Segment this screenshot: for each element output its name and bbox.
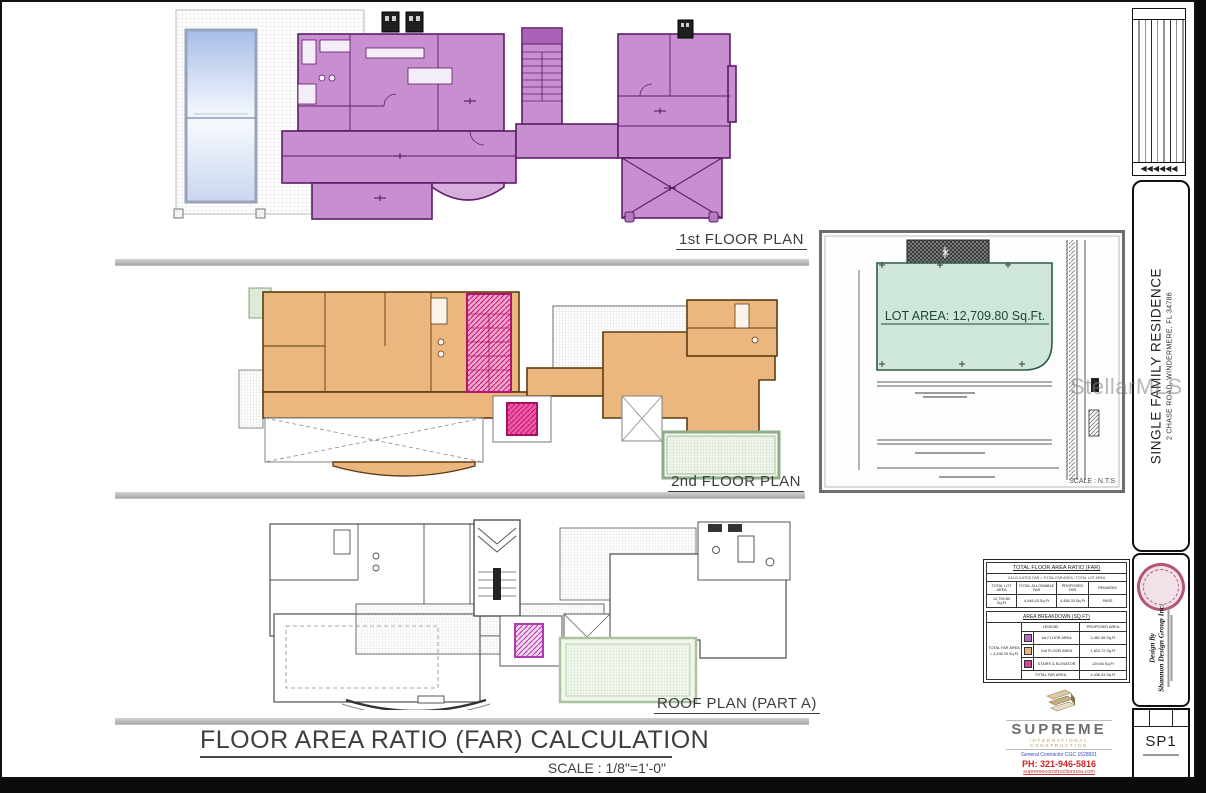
roof-stair-tower bbox=[474, 520, 520, 616]
designer-name: Shannon Design Group Inc. bbox=[1157, 602, 1166, 694]
far-summary-table: TOTAL FLOOR AREA RATIO (FAR) CALCULATED … bbox=[983, 559, 1130, 683]
roof-elevator bbox=[500, 616, 562, 666]
project-name: SINGLE FAMILY RESIDENCE bbox=[1149, 191, 1164, 541]
revision-arrows-icon: ◀◀◀◀◀◀ bbox=[1133, 162, 1185, 175]
contractor-website[interactable]: supremeconstructionusa.com bbox=[1006, 769, 1112, 775]
sheet-scale: SCALE : 1/8"=1'-0" bbox=[200, 760, 672, 776]
designer-box: Design By Shannon Design Group Inc. bbox=[1132, 553, 1190, 707]
separator-bar bbox=[115, 718, 809, 724]
contractor-name: SUPREME bbox=[1006, 720, 1112, 738]
lot-area-label: LOT AREA: 12,709.80 Sq.Ft. bbox=[885, 309, 1045, 323]
second-floor-plan-label: 2nd FLOOR PLAN bbox=[668, 473, 804, 492]
second-floor-plan-drawing bbox=[235, 284, 809, 484]
roof-bath-detail bbox=[698, 522, 790, 580]
drawing-sheet: LOT AREA: 12,709.80 Sq.Ft. SCALE : N.T.S bbox=[0, 0, 1196, 779]
roof-plan-drawing bbox=[238, 510, 812, 710]
designer-address-lines bbox=[1168, 608, 1173, 688]
legend-swatch-first-floor bbox=[1024, 634, 1032, 642]
terrace bbox=[663, 432, 779, 478]
separator-bar bbox=[115, 259, 809, 265]
site-plan: LOT AREA: 12,709.80 Sq.Ft. SCALE : N.T.S bbox=[819, 230, 1125, 493]
contractor-block: SUPREME INTERNATIONAL CONSTRUCTION Gener… bbox=[1006, 688, 1112, 775]
elevator bbox=[493, 396, 551, 442]
contractor-phone: PH: 321-946-5816 bbox=[1006, 759, 1112, 769]
roof-terrace bbox=[560, 638, 696, 702]
first-floor-plan-label: 1st FLOOR PLAN bbox=[676, 231, 807, 250]
sheet-number: SP1 bbox=[1134, 733, 1188, 750]
contractor-license: General Contractor CGC 1528931 bbox=[1006, 752, 1112, 758]
separator-bar bbox=[115, 492, 805, 498]
design-by-label: Design By bbox=[1149, 602, 1157, 694]
far-ratio-grid: TOTAL LOT AREA TOTAL ALLOWABLE FAR PROPO… bbox=[986, 581, 1127, 608]
contractor-tagline: INTERNATIONAL CONSTRUCTION bbox=[1006, 738, 1112, 750]
sheet-title: FLOOR AREA RATIO (FAR) CALCULATION bbox=[200, 726, 672, 758]
legend-swatch-stairs bbox=[1024, 660, 1032, 668]
far-table-note: CALCULATED FAR = TOTAL FAR AREA / TOTAL … bbox=[986, 573, 1127, 581]
roof-plan-label: ROOF PLAN (PART A) bbox=[654, 695, 820, 714]
far-table-title: TOTAL FLOOR AREA RATIO (FAR) bbox=[986, 562, 1127, 573]
first-floor-plan-drawing bbox=[170, 6, 740, 228]
site-scale-label: SCALE : N.T.S bbox=[1069, 478, 1115, 485]
supreme-logo-icon bbox=[1037, 688, 1081, 714]
sheet-number-box: SP1 bbox=[1132, 708, 1190, 779]
revision-columns bbox=[1133, 19, 1185, 162]
project-address: 2 CHASE ROAD, WINDERMERE, FL 34786 bbox=[1167, 191, 1174, 541]
legend-swatch-second-floor bbox=[1024, 647, 1032, 655]
stair-tower bbox=[467, 294, 511, 392]
sheet-title-block: FLOOR AREA RATIO (FAR) CALCULATION SCALE… bbox=[200, 726, 672, 776]
swimming-pool bbox=[186, 30, 256, 202]
stellar-mls-watermark: StellarMLS bbox=[1070, 374, 1183, 400]
revision-table: ◀◀◀◀◀◀ bbox=[1132, 8, 1186, 176]
area-breakdown-table: AREA BREAKDOWN (SQ.FT) TOTAL FAR AREA = … bbox=[986, 611, 1127, 680]
curved-balcony bbox=[333, 462, 475, 476]
project-title-box: SINGLE FAMILY RESIDENCE 2 CHASE ROAD, WI… bbox=[1132, 180, 1190, 552]
